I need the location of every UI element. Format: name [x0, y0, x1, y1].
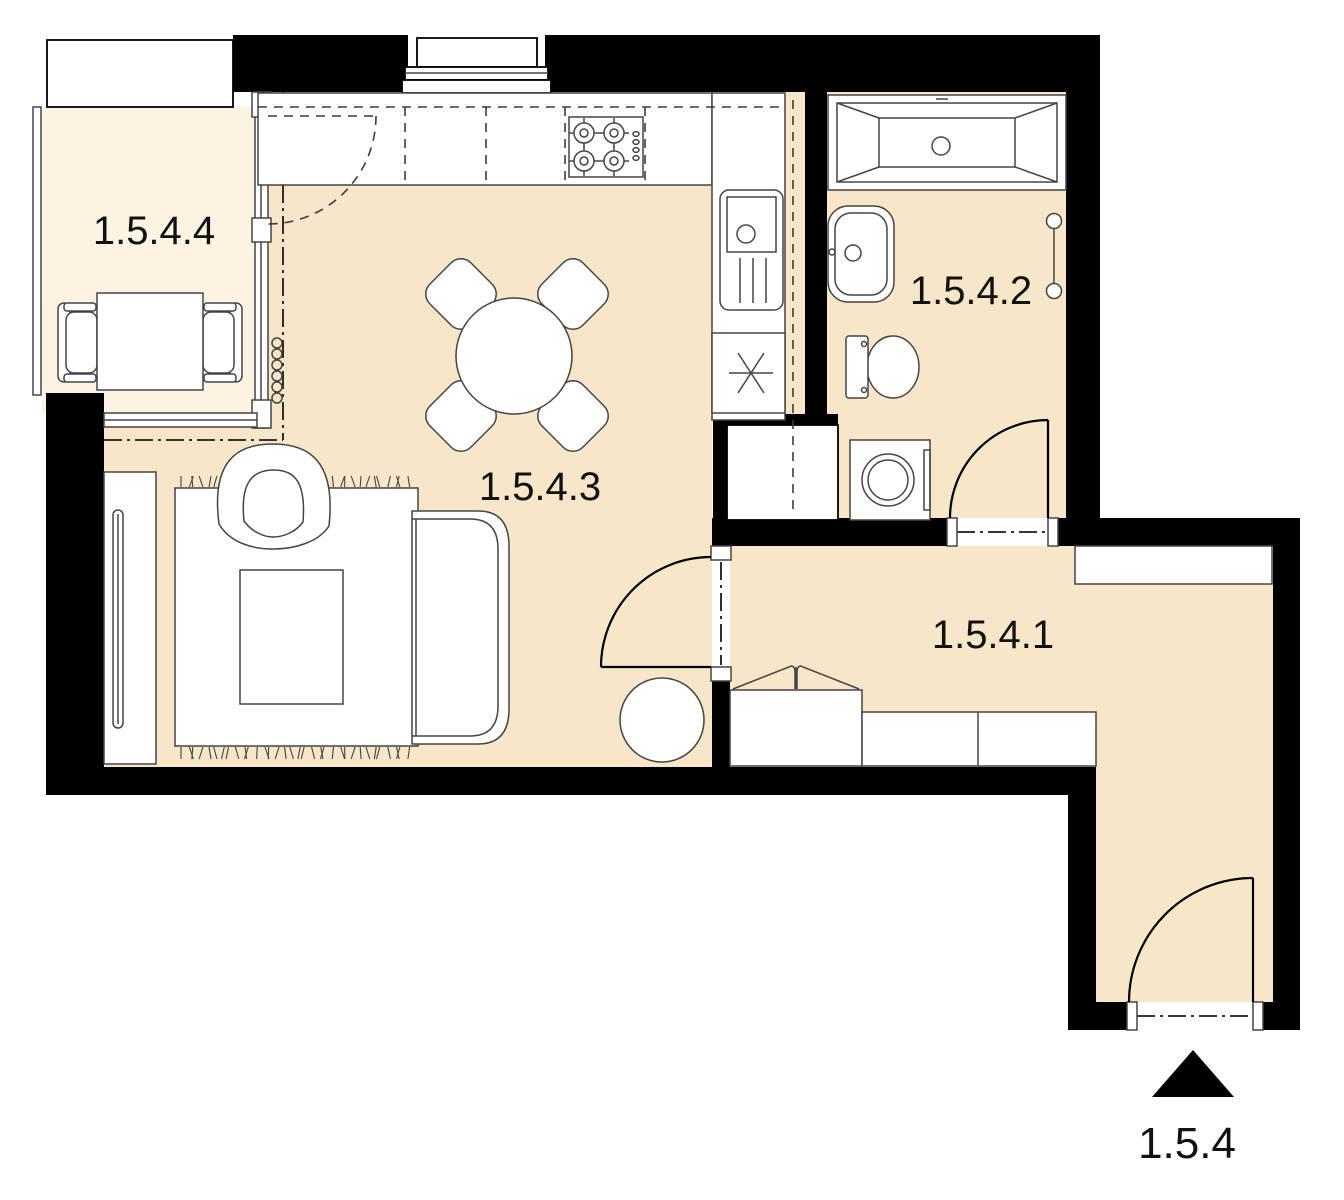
pouf	[620, 678, 704, 762]
washing-machine	[850, 440, 930, 520]
bathtub	[828, 95, 1066, 190]
entry-shelf	[1075, 546, 1272, 584]
dining-table	[456, 298, 572, 414]
balcony-parapet	[47, 40, 233, 107]
balcony-furniture	[58, 293, 242, 390]
fridge-symbol	[712, 333, 785, 413]
washbasin	[828, 206, 894, 302]
tv-unit	[104, 472, 156, 764]
floor-plan-svg: 1.5.4.4 1.5.4.2 1.5.4.3 1.5.4.1 1.5.4	[0, 0, 1344, 1200]
hallway-label: 1.5.4.1	[932, 613, 1054, 657]
tv-cabinet	[104, 472, 156, 764]
balcony-side-rail	[33, 107, 41, 395]
wardrobe	[730, 690, 862, 766]
balcony-chair-right	[203, 303, 242, 382]
balcony-table	[97, 293, 203, 390]
kitchen-window	[402, 38, 551, 93]
coffee-table	[240, 570, 343, 704]
kitchen-sink	[720, 190, 783, 310]
hall-cabinet	[862, 712, 1096, 766]
entrance-arrow-icon	[1152, 1050, 1234, 1097]
stove	[569, 117, 643, 177]
armchair	[218, 444, 331, 549]
living-label: 1.5.4.3	[479, 465, 601, 509]
toilet	[846, 336, 919, 398]
sofa	[412, 511, 509, 744]
unit-label: 1.5.4	[1138, 1119, 1236, 1168]
balcony-chair-left	[58, 303, 97, 382]
balcony-label: 1.5.4.4	[93, 209, 215, 253]
duct-niche	[727, 425, 838, 520]
floor-plan: 1.5.4.4 1.5.4.2 1.5.4.3 1.5.4.1 1.5.4	[0, 0, 1344, 1200]
bathroom-label: 1.5.4.2	[910, 269, 1032, 313]
